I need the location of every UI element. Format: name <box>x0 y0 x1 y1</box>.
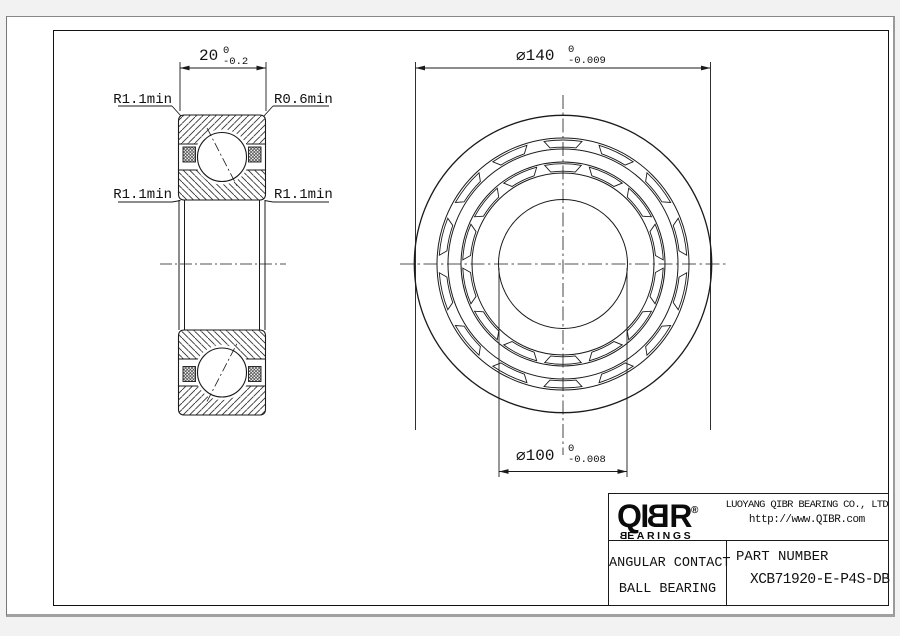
outer-dia-value: ⌀140 <box>516 47 554 65</box>
cage-pocket <box>650 224 663 260</box>
radius-label-mid-right: R1.1min <box>274 187 333 203</box>
radius-label-top-right: R0.6min <box>274 92 333 108</box>
arrowhead <box>416 66 426 71</box>
arrowhead <box>257 66 267 71</box>
cage-section <box>183 147 196 162</box>
ball-section <box>198 133 247 182</box>
outer-dia-tol-lower: -0.009 <box>568 55 606 67</box>
title-block-detail-row: ANGULAR CONTACT BALL BEARING PART NUMBER… <box>609 541 888 605</box>
product-line1: ANGULAR CONTACT <box>609 551 726 577</box>
arrowhead <box>499 469 509 474</box>
radius-label-mid-left: R1.1min <box>113 187 172 203</box>
part-number-label: PART NUMBER <box>736 549 889 565</box>
logo-wordmark: QIBR® <box>617 497 726 530</box>
width-dim-tol-lower: -0.2 <box>223 56 248 68</box>
cage-pocket <box>463 224 476 260</box>
cage-section <box>249 147 262 162</box>
bore-dia-value: ⌀100 <box>516 447 554 465</box>
section-view <box>118 62 329 415</box>
logo-letters: QI <box>617 498 648 534</box>
logo-letters: R <box>669 498 691 534</box>
product-line2: BALL BEARING <box>609 577 726 603</box>
cage-pocket <box>475 188 499 217</box>
logo-mirrored-letter: B <box>617 530 627 542</box>
arrowhead <box>618 469 628 474</box>
registered-trademark-icon: ® <box>691 505 698 516</box>
cage-pocket <box>650 268 663 304</box>
title-block: QIBR® BEARINGS LUOYANG QIBR BEARING CO.,… <box>608 493 889 606</box>
company-name: LUOYANG QIBR BEARING CO., LTD <box>726 499 888 512</box>
cage-pocket <box>673 273 686 310</box>
cage-pocket <box>627 311 651 340</box>
company-info: LUOYANG QIBR BEARING CO., LTD http://www… <box>726 494 888 540</box>
cage-pocket <box>439 273 452 310</box>
cage-pocket <box>673 218 686 255</box>
product-type-cell: ANGULAR CONTACT BALL BEARING <box>609 541 727 605</box>
bore-lines <box>179 200 265 330</box>
section-top-half <box>179 115 266 200</box>
cage-pocket <box>627 188 651 217</box>
section-bottom-half <box>179 330 266 415</box>
cage-section <box>183 367 196 382</box>
part-number-value: XCB71920-E-P4S-DB <box>750 572 889 588</box>
drawing-page: { "drawing": { "section_view": { "width_… <box>0 0 900 636</box>
arrowhead <box>701 66 711 71</box>
bore-dia-tol-lower: -0.008 <box>568 454 606 466</box>
cage-pocket <box>439 218 452 255</box>
width-dim-value: 20 <box>199 47 218 65</box>
company-website: http://www.QIBR.com <box>726 512 888 529</box>
title-block-header-row: QIBR® BEARINGS LUOYANG QIBR BEARING CO.,… <box>609 494 888 541</box>
cage-section <box>249 367 262 382</box>
qibr-logo: QIBR® BEARINGS <box>609 494 726 540</box>
width-dimension <box>180 62 266 111</box>
radius-label-top-left: R1.1min <box>113 92 172 108</box>
logo-mirrored-letter: B <box>648 502 670 530</box>
part-number-cell: PART NUMBER XCB71920-E-P4S-DB <box>727 541 889 605</box>
cage-pocket <box>463 268 476 304</box>
ball-section <box>198 348 247 397</box>
cage-pocket <box>475 311 499 340</box>
arrowhead <box>180 66 190 71</box>
